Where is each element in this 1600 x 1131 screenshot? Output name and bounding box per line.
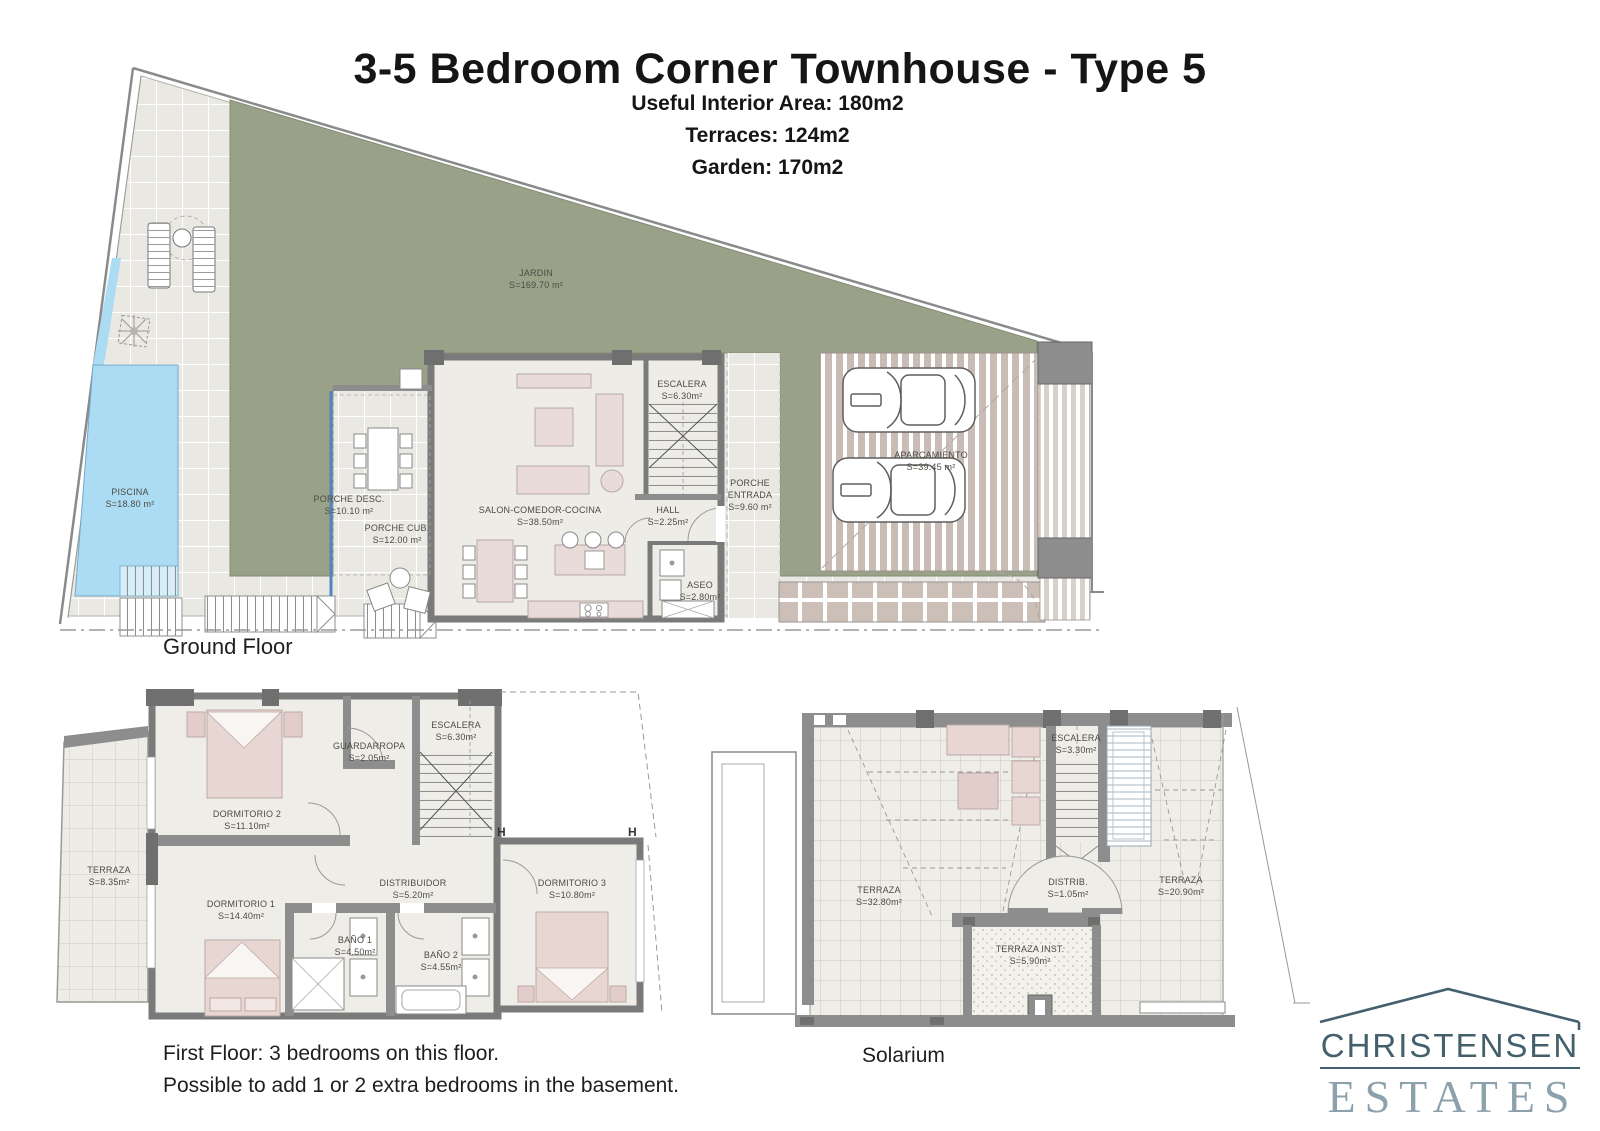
room-label-dormitorio-1: DORMITORIO 1 S=14.40m² — [207, 898, 275, 922]
h-marker-2: H — [628, 825, 637, 839]
logo-divider — [1320, 1067, 1580, 1069]
h-marker-1: H — [497, 825, 506, 839]
lower-terrace-edge — [712, 752, 796, 1014]
room-label-escalera-ff: ESCALERA S=6.30m² — [431, 719, 481, 743]
terraces-line: Terraces: 124m2 — [0, 120, 1535, 152]
floor-plan-sheet: H H — [0, 0, 1600, 1131]
logo-subname: ESTATES — [1324, 1070, 1582, 1123]
room-label-porche-cub: PORCHE CUB. S=12.00 m² — [365, 522, 430, 546]
room-label-aseo: ASEO S=2.80m² — [680, 579, 721, 603]
roof-icon — [1318, 984, 1582, 1030]
room-label-escalera-sol: ESCALERA S=3.30m² — [1051, 732, 1101, 756]
dining-table — [463, 540, 527, 602]
room-label-dormitorio-3: DORMITORIO 3 S=10.80m² — [538, 877, 606, 901]
solarium-plan — [712, 707, 1310, 1027]
room-label-salon: SALON-COMEDOR-COCINA S=38.50m² — [479, 504, 602, 528]
room-label-dormitorio-2: DORMITORIO 2 S=11.10m² — [213, 808, 281, 832]
agency-logo: CHRISTENSEN ESTATES — [1318, 984, 1582, 1123]
room-label-bano-1: BAÑO 1 S=4.50m² — [335, 934, 376, 958]
side-strip — [1038, 342, 1104, 620]
room-label-jardin: JARDIN S=169.70 m² — [509, 267, 563, 291]
room-label-distribuidor: DISTRIBUIDOR S=5.20m² — [380, 877, 447, 901]
room-label-hall: HALL S=2.25m² — [648, 504, 689, 528]
area-summary: Useful Interior Area: 180m2 Terraces: 12… — [0, 88, 1535, 184]
car-1 — [843, 368, 975, 432]
room-label-porche-entrada: PORCHE ENTRADA S=9.60 m² — [728, 477, 772, 513]
useful-area-line: Useful Interior Area: 180m2 — [0, 88, 1535, 120]
room-label-aparcamiento: APARCAMIENTO S=39.45 m² — [894, 449, 968, 473]
page-title: 3-5 Bedroom Corner Townhouse - Type 5 — [0, 45, 1560, 94]
room-label-guardarropa: GUARDARROPA S=2.05m² — [333, 740, 405, 764]
bed-dormitorio-1 — [205, 940, 280, 1016]
garden-line: Garden: 170m2 — [0, 152, 1535, 184]
outdoor-shower-icon — [118, 315, 150, 347]
room-label-porche-desc: PORCHE DESC. S=10.10 m² — [314, 493, 385, 517]
solarium-caption: Solarium — [862, 1040, 945, 1072]
room-label-escalera-gf: ESCALERA S=6.30m² — [657, 378, 707, 402]
first-floor-plan: H H — [57, 689, 662, 1016]
logo-name: CHRISTENSEN — [1318, 1027, 1582, 1065]
first-floor-caption-line1: First Floor: 3 bedrooms on this floor. — [163, 1038, 679, 1070]
room-label-terraza-right: TERRAZA S=20.90m² — [1158, 874, 1204, 898]
room-label-distrib: DISTRIB. S=1.05m² — [1048, 876, 1089, 900]
driveway-pavers — [779, 582, 1045, 622]
ground-floor-caption: Ground Floor — [163, 634, 293, 660]
room-label-terraza-ff: TERRAZA S=8.35m² — [87, 864, 130, 888]
room-label-bano-2: BAÑO 2 S=4.55m² — [421, 949, 462, 973]
first-floor-caption-line2: Possible to add 1 or 2 extra bedrooms in… — [163, 1070, 679, 1102]
room-label-terraza-inst: TERRAZA INST. S=5.90m² — [996, 943, 1065, 967]
room-label-terraza-left: TERRAZA S=32.80m² — [856, 884, 902, 908]
room-label-piscina: PISCINA S=18.80 m² — [106, 486, 155, 510]
first-floor-caption: First Floor: 3 bedrooms on this floor. P… — [163, 1038, 679, 1102]
